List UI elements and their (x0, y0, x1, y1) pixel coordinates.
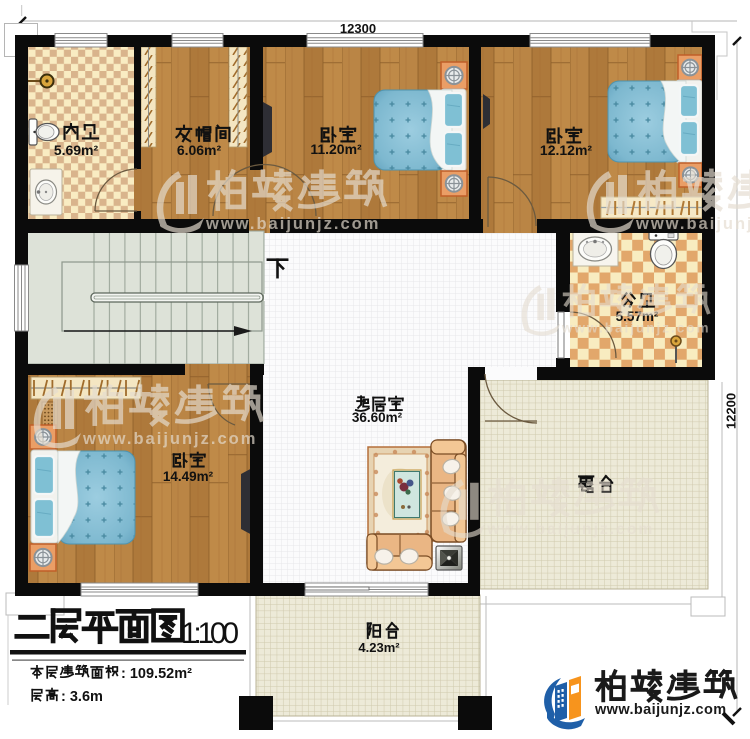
svg-text:6.06m²: 6.06m² (177, 142, 222, 158)
svg-text:www.baijunjz.com: www.baijunjz.com (82, 430, 257, 448)
svg-text:11.20m²: 11.20m² (310, 141, 362, 157)
svg-text:www.baijunjz.com: www.baijunjz.com (561, 320, 711, 335)
svg-text:36.60m²: 36.60m² (352, 410, 403, 425)
svg-text:www.baijunjz.com: www.baijunjz.com (205, 215, 380, 233)
svg-text:14.49m²: 14.49m² (163, 469, 214, 484)
svg-text:12.12m²: 12.12m² (540, 142, 592, 158)
svg-text:www.baijunjz.com: www.baijunjz.com (635, 215, 750, 233)
svg-text:12200: 12200 (724, 393, 739, 429)
svg-text:5.69m²: 5.69m² (54, 142, 99, 158)
svg-text:: 3.6m: : 3.6m (61, 689, 103, 705)
svg-text:: 109.52m²: : 109.52m² (121, 666, 192, 682)
svg-text:4.23m²: 4.23m² (358, 640, 400, 655)
svg-text:www.baijunjz.com: www.baijunjz.com (486, 521, 654, 538)
svg-text:www.baijunjz.com: www.baijunjz.com (594, 702, 727, 718)
svg-text:1:100: 1:100 (181, 617, 239, 650)
